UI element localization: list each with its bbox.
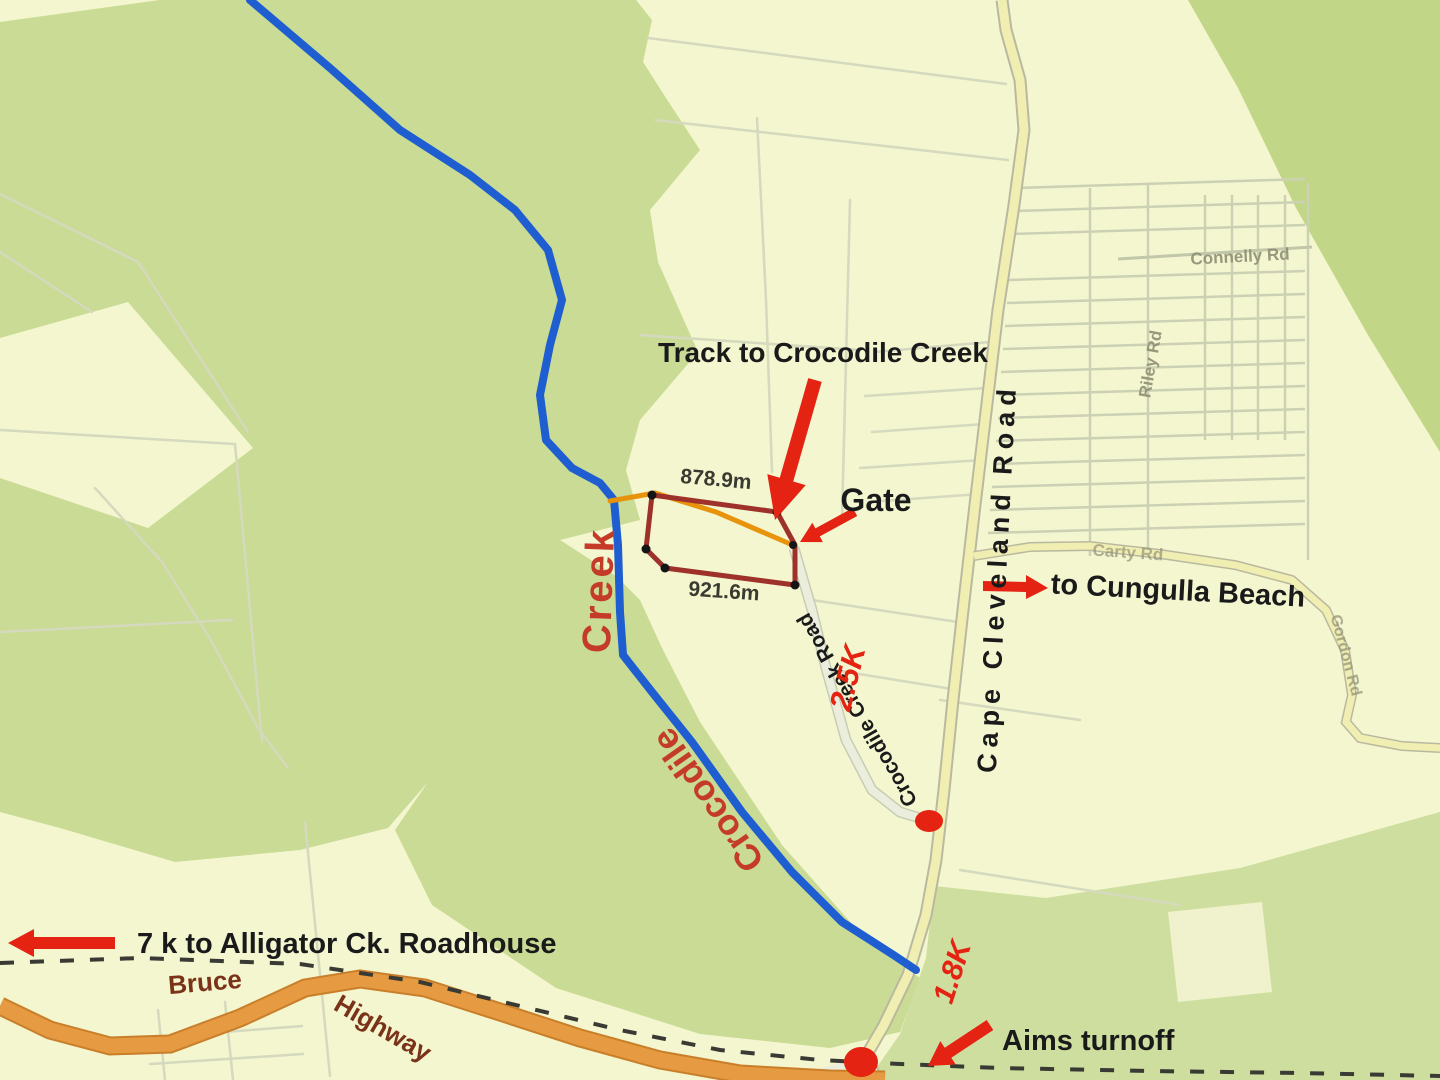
gate-label: Gate [840,482,911,518]
pale-patch-bottomright [1168,902,1272,1002]
bruce-label: Bruce [167,964,243,1000]
roadhouse-label: 7 k to Alligator Ck. Roadhouse [137,928,556,960]
junction-dot-aims-turnoff [844,1047,878,1077]
track-label: Track to Crocodile Creek [658,337,988,368]
map-svg: Connelly Rd Riley Rd Carty Rd Gordon Rd … [0,0,1440,1080]
junction-dot-crocodile-creek-road [915,810,943,832]
creek-label-word2: Creek [575,526,623,654]
map-canvas: Connelly Rd Riley Rd Carty Rd Gordon Rd … [0,0,1440,1080]
aims-label: Aims turnoff [1002,1025,1175,1057]
